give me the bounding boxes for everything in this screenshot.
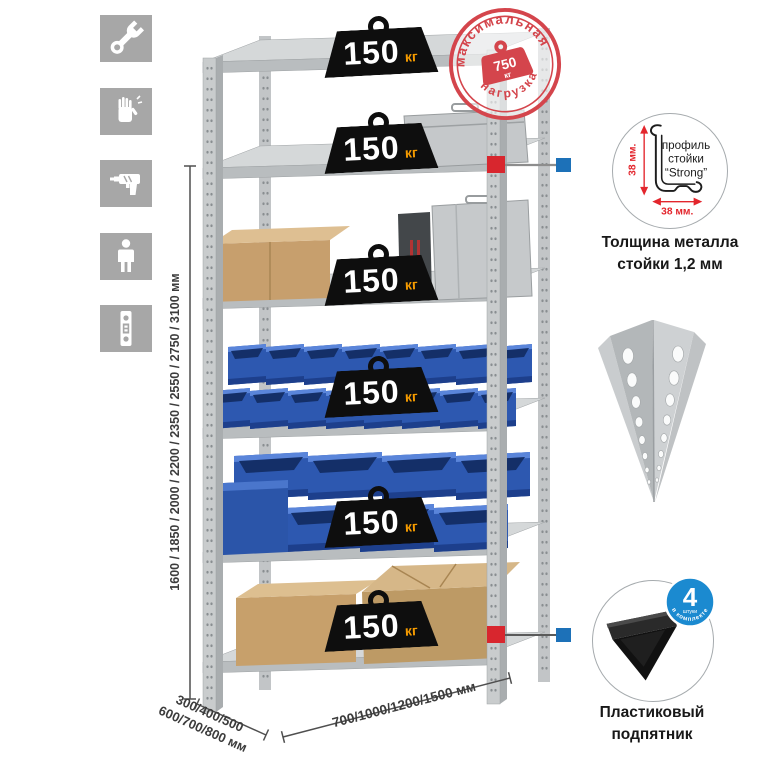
post-profile-detail-circle: 38 мм. 38 мм. профиль стойки “Strong” bbox=[612, 113, 728, 229]
load-unit: кг bbox=[404, 276, 418, 293]
plastic-foot-caption-line2: подпятник bbox=[584, 724, 720, 746]
assembler-person-icon bbox=[100, 233, 152, 280]
profile-label-line2: стойки bbox=[668, 153, 704, 166]
load-value: 150 bbox=[342, 33, 400, 73]
weight-body: 150 кг bbox=[322, 496, 438, 548]
weight-body: 150 кг bbox=[322, 254, 438, 306]
plastic-foot-caption: Пластиковый подпятник bbox=[584, 702, 720, 745]
foot-callout-connector bbox=[487, 626, 571, 643]
weight-badge: 150 кг bbox=[322, 109, 439, 175]
profile-label-line1: профиль bbox=[662, 139, 710, 152]
drill-icon bbox=[100, 160, 152, 207]
weight-badge: 150 кг bbox=[322, 241, 439, 307]
gloves-icon bbox=[100, 88, 152, 135]
weight-body: 150 кг bbox=[322, 600, 438, 652]
metal-thickness-caption-line1: Толщина металла bbox=[584, 232, 756, 254]
load-unit: кг bbox=[404, 48, 418, 65]
profile-dim-horizontal: 38 мм. bbox=[661, 206, 693, 217]
weight-badge: 150 кг bbox=[322, 587, 439, 653]
perforated-profile-icon bbox=[100, 305, 152, 352]
load-value: 150 bbox=[342, 129, 400, 169]
weight-body: 150 кг bbox=[322, 366, 438, 418]
weight-body: 150 кг bbox=[322, 26, 438, 78]
load-value: 150 bbox=[342, 607, 400, 647]
weight-badge: 150 кг bbox=[322, 353, 439, 419]
aluminium-case-large bbox=[432, 196, 532, 300]
load-unit: кг bbox=[404, 388, 418, 405]
load-value: 150 bbox=[342, 503, 400, 543]
count-badge-value: 4 bbox=[683, 582, 698, 612]
load-unit: кг bbox=[404, 518, 418, 535]
metal-thickness-caption: Толщина металла стойки 1,2 мм bbox=[584, 232, 756, 275]
profile-dim-vertical: 38 мм. bbox=[627, 144, 638, 176]
count-badge-label: штуки bbox=[683, 609, 697, 615]
load-unit: кг bbox=[404, 622, 418, 639]
load-unit: кг bbox=[404, 144, 418, 161]
wrench-icon bbox=[100, 15, 152, 62]
height-dimension-line bbox=[184, 166, 196, 699]
weight-badge: 150 кг bbox=[322, 13, 439, 79]
profile-callout-connector bbox=[487, 156, 571, 173]
load-value: 150 bbox=[342, 373, 400, 413]
included-count-badge: в комплекте 4 штуки bbox=[663, 575, 717, 629]
weight-body: 150 кг bbox=[322, 122, 438, 174]
height-dimension-label: 1600 / 1850 / 2000 / 2200 / 2350 / 2550 … bbox=[168, 162, 182, 702]
metal-thickness-caption-line2: стойки 1,2 мм bbox=[584, 254, 756, 276]
profile-label-line3: “Strong” bbox=[665, 166, 707, 179]
corner-post-illustration bbox=[594, 306, 712, 521]
plastic-foot-caption-line1: Пластиковый bbox=[584, 702, 720, 724]
load-value: 150 bbox=[342, 261, 400, 301]
weight-badge: 150 кг bbox=[322, 483, 439, 549]
